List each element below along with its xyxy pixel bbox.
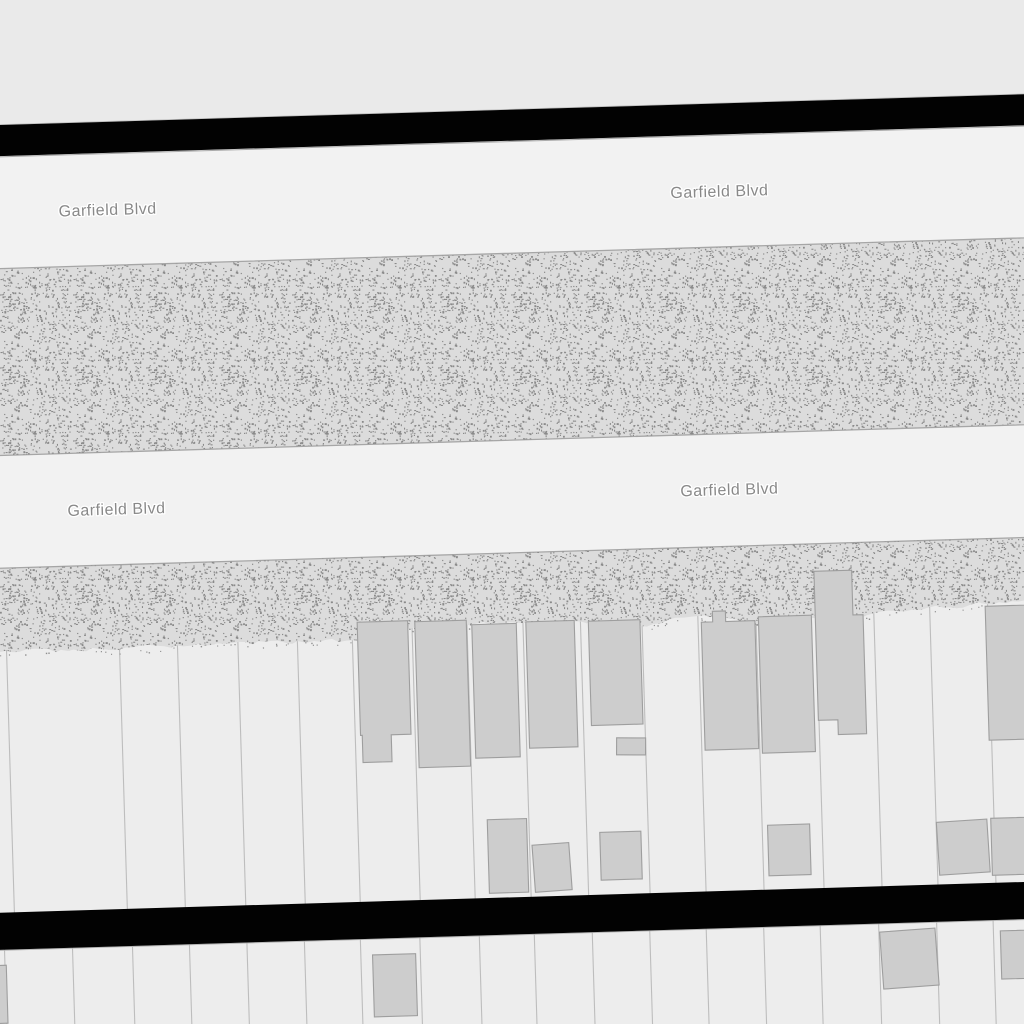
svg-text:Garfield Blvd: Garfield Blvd: [58, 201, 157, 221]
svg-text:Garfield Blvd: Garfield Blvd: [680, 480, 779, 500]
svg-text:Garfield Blvd: Garfield Blvd: [670, 182, 769, 202]
svg-text:Garfield Blvd: Garfield Blvd: [67, 500, 166, 520]
